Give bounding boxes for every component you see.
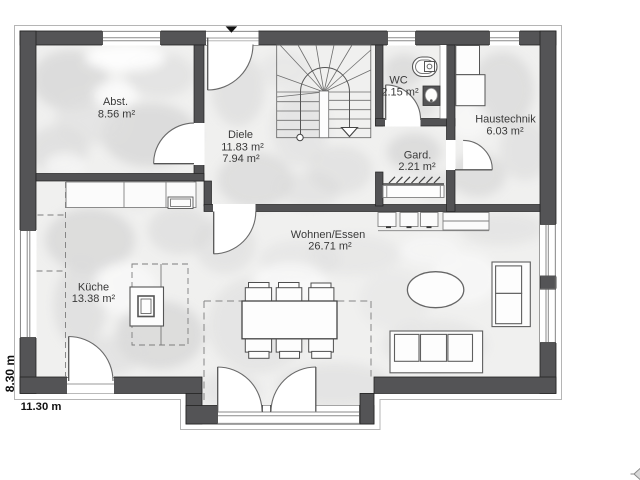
svg-text:11.83 m²: 11.83 m² — [221, 142, 264, 154]
svg-text:Diele: Diele — [228, 129, 253, 141]
svg-text:2.21 m²: 2.21 m² — [398, 161, 436, 173]
svg-text:Gard.: Gard. — [404, 150, 432, 162]
svg-text:Küche: Küche — [78, 282, 109, 294]
svg-text:Haustechnik: Haustechnik — [475, 114, 536, 126]
svg-text:8.56 m²: 8.56 m² — [98, 109, 136, 121]
svg-text:2.15 m²: 2.15 m² — [381, 87, 419, 99]
svg-text:Abst.: Abst. — [103, 96, 128, 108]
svg-text:11.30 m: 11.30 m — [21, 401, 62, 413]
svg-text:6.03 m²: 6.03 m² — [486, 126, 524, 138]
svg-text:8.30 m: 8.30 m — [3, 355, 17, 392]
svg-text:WC: WC — [389, 75, 407, 87]
svg-text:7.94 m²: 7.94 m² — [222, 153, 260, 165]
svg-text:13.38 m²: 13.38 m² — [72, 293, 116, 305]
svg-text:26.71 m²: 26.71 m² — [308, 241, 352, 253]
svg-text:Wohnen/Essen: Wohnen/Essen — [291, 229, 365, 241]
